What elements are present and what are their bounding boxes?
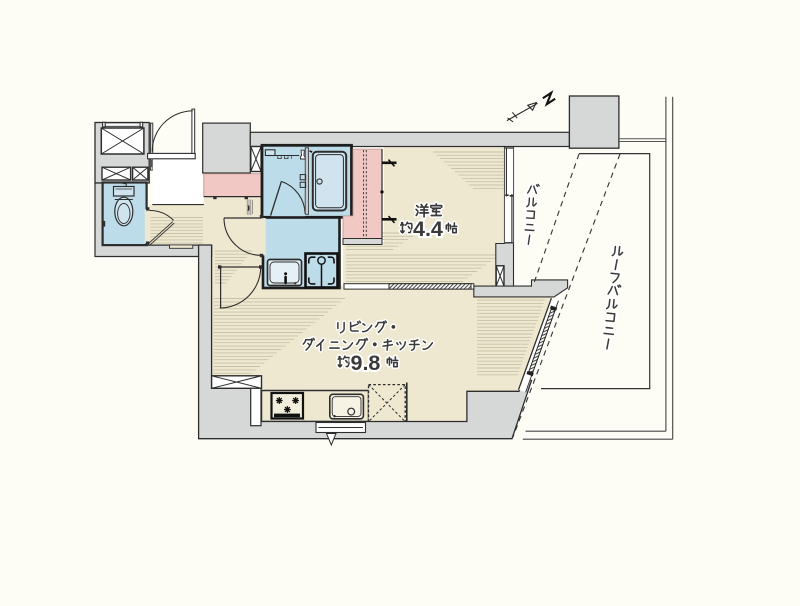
svg-text:4.4: 4.4 xyxy=(413,217,443,241)
svg-text:9.8: 9.8 xyxy=(351,351,381,375)
